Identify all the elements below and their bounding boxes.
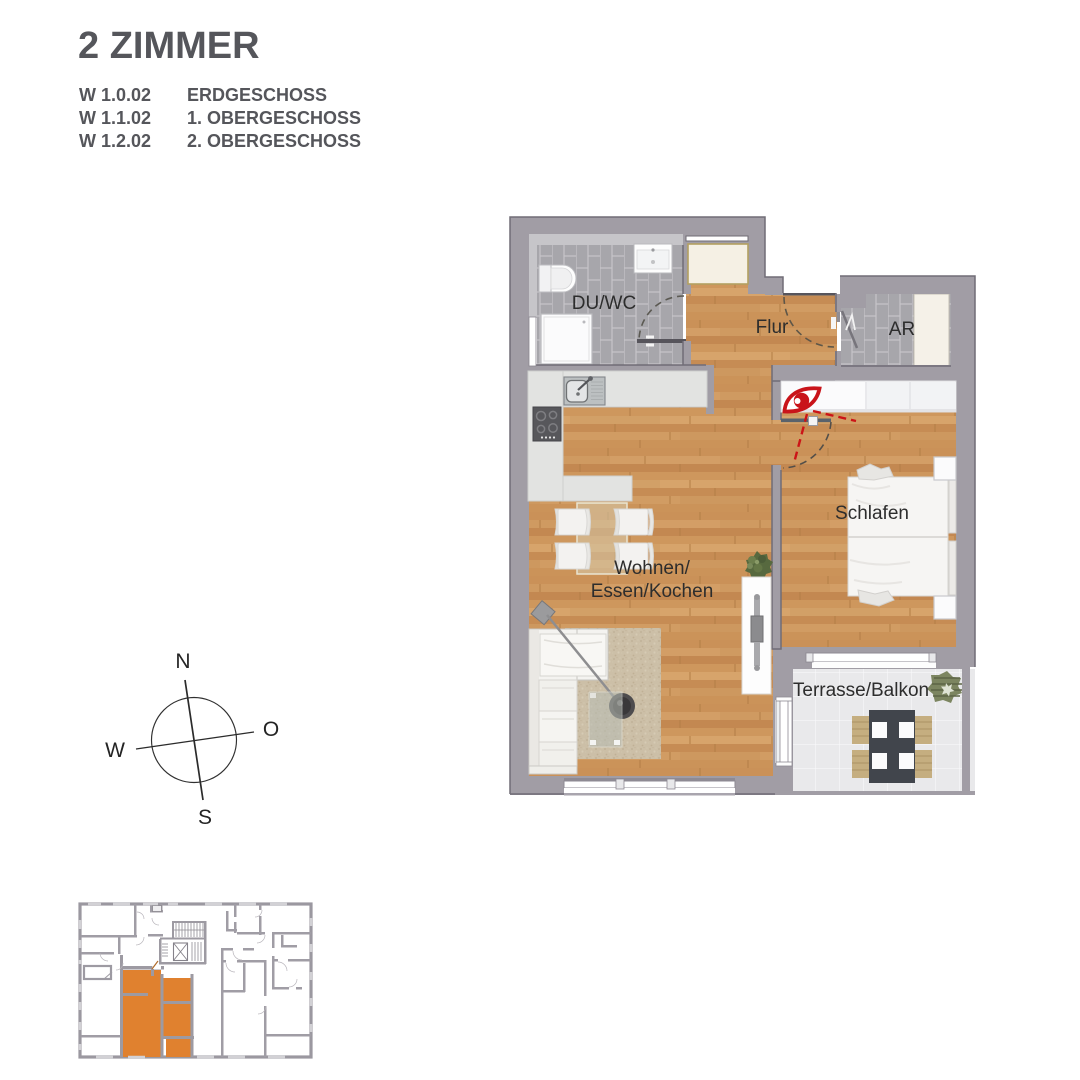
svg-text:Essen/Kochen: Essen/Kochen — [591, 581, 714, 602]
svg-text:ERDGESCHOSS: ERDGESCHOSS — [187, 85, 327, 105]
svg-text:AR: AR — [889, 319, 915, 340]
svg-text:S: S — [198, 806, 212, 829]
svg-text:1. OBERGESCHOSS: 1. OBERGESCHOSS — [187, 108, 361, 128]
svg-text:W 1.0.02: W 1.0.02 — [79, 85, 151, 105]
svg-text:Terrasse/Balkon: Terrasse/Balkon — [793, 680, 929, 701]
svg-text:Flur: Flur — [756, 317, 789, 338]
svg-text:W 1.1.02: W 1.1.02 — [79, 108, 151, 128]
svg-text:Schlafen: Schlafen — [835, 503, 909, 524]
svg-text:W 1.2.02: W 1.2.02 — [79, 131, 151, 151]
svg-text:2 ZIMMER: 2 ZIMMER — [78, 25, 260, 67]
svg-text:DU/WC: DU/WC — [572, 293, 636, 314]
svg-text:2. OBERGESCHOSS: 2. OBERGESCHOSS — [187, 131, 361, 151]
svg-text:O: O — [263, 718, 279, 741]
svg-text:Wohnen/: Wohnen/ — [614, 558, 690, 579]
svg-text:N: N — [175, 650, 190, 673]
svg-text:W: W — [105, 739, 125, 762]
